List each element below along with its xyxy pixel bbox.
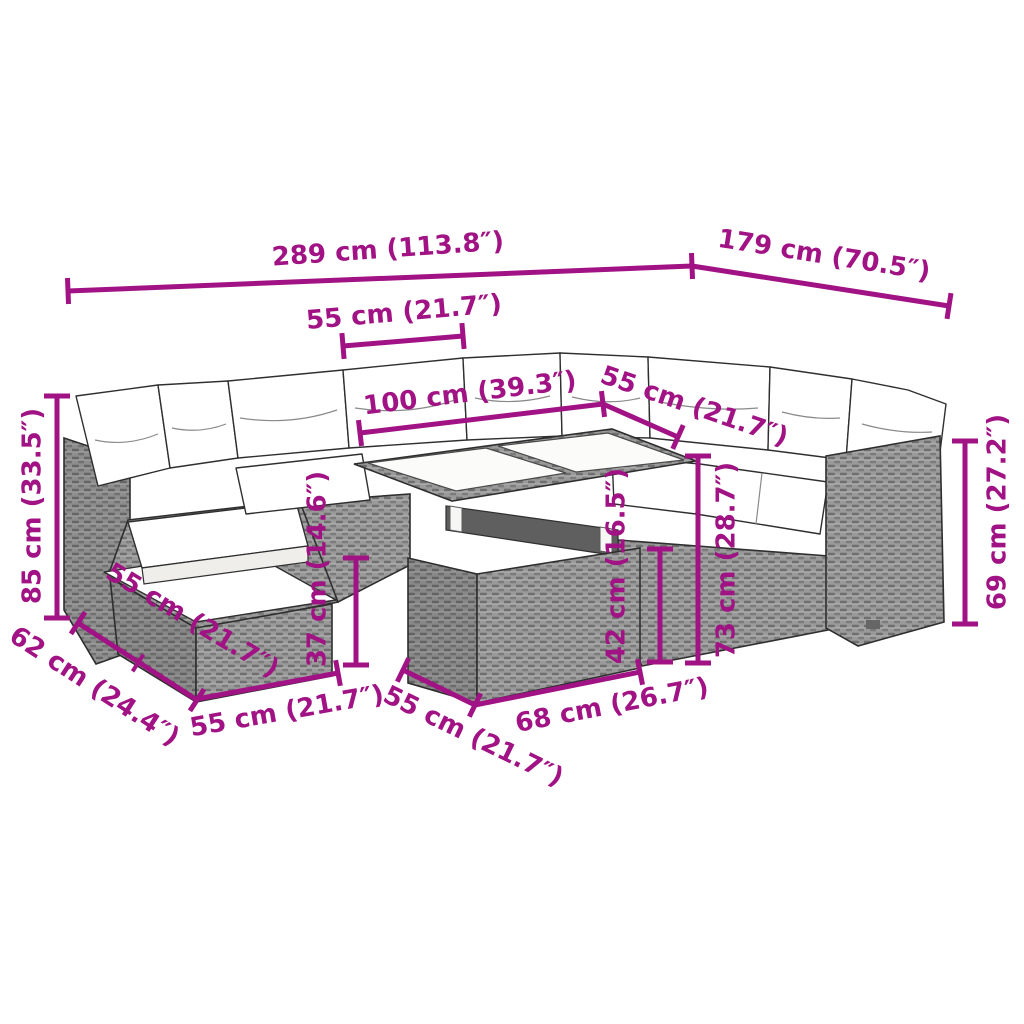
dim-label-seat-section-height: 73 cm (28.7″) — [712, 462, 742, 658]
table-shelf-recess — [446, 506, 618, 556]
dim-label-table-base-height: 42 cm (16.5″) — [602, 468, 632, 664]
sofa-right-corner-arm — [826, 436, 944, 646]
dimension-arm-section-height: 69 cm (27.2″) — [952, 414, 1013, 624]
dim-label-overall-width: 289 cm (113.8″) — [271, 226, 505, 272]
dim-label-overall-depth-right: 179 cm (70.5″) — [716, 224, 932, 287]
dimension-back-height: 85 cm (33.5″) — [18, 396, 71, 618]
dimension-overall-depth-right: 179 cm (70.5″) — [692, 224, 951, 319]
dim-label-back-height: 85 cm (33.5″) — [18, 408, 48, 604]
table-leg — [450, 506, 462, 532]
diagram-canvas: 289 cm (113.8″)179 cm (70.5″)55 cm (21.7… — [0, 0, 1024, 1024]
dimension-overall-width: 289 cm (113.8″) — [67, 226, 692, 304]
dim-label-arm-section-height: 69 cm (27.2″) — [983, 414, 1013, 610]
dimension-back-seat-width: 55 cm (21.7″) — [305, 289, 503, 359]
foot — [866, 620, 880, 629]
dim-label-ottoman-height: 37 cm (14.6″) — [303, 471, 333, 667]
pillow — [228, 370, 349, 458]
sofa-set — [64, 353, 946, 703]
dim-label-back-seat-width: 55 cm (21.7″) — [305, 289, 503, 336]
dimension-diagram: 289 cm (113.8″)179 cm (70.5″)55 cm (21.7… — [0, 0, 1024, 1024]
